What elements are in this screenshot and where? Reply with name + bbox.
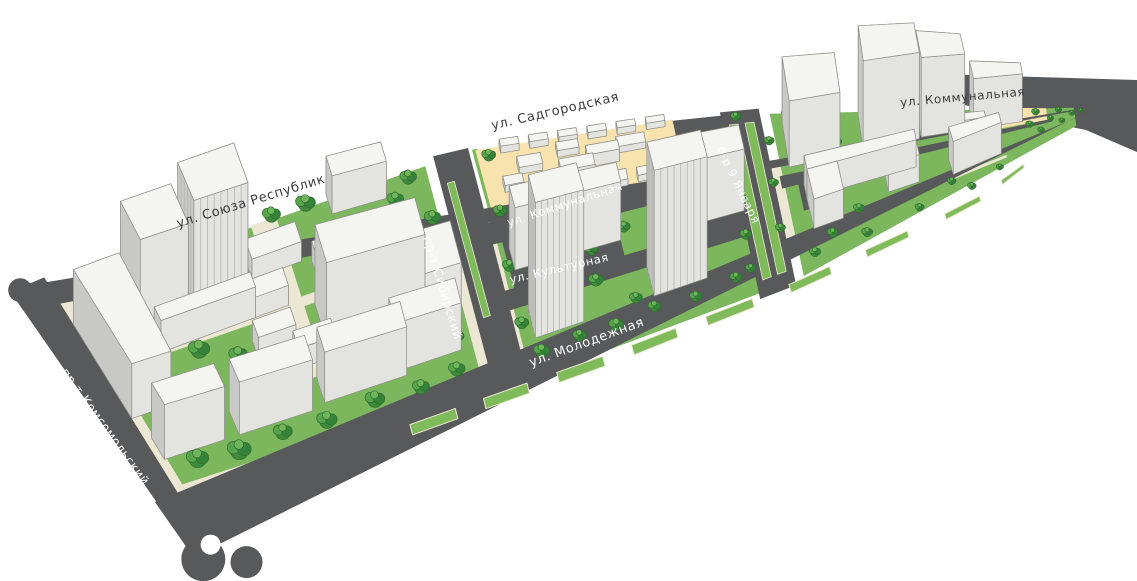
masterplan-svg: ул. Союза Республикул. Садгородскаяул. К… xyxy=(0,0,1137,581)
building xyxy=(616,119,636,135)
tree-blob xyxy=(1070,110,1072,112)
building-roof xyxy=(782,53,840,101)
tree-blob xyxy=(652,301,657,306)
tree-blob xyxy=(194,340,203,349)
tree-blob xyxy=(279,424,287,432)
building xyxy=(807,161,843,229)
tree-blob xyxy=(404,170,411,177)
tree-blob xyxy=(748,264,752,268)
building xyxy=(587,123,607,139)
tree-blob xyxy=(593,274,599,280)
road-edge-detail-2 xyxy=(8,278,32,302)
tree-blob xyxy=(506,260,512,266)
tree-blob xyxy=(1057,107,1060,110)
tree-blob xyxy=(1079,108,1081,110)
tree-blob xyxy=(998,164,1001,167)
building xyxy=(916,31,965,138)
tree-blob xyxy=(970,182,973,185)
tree-blob xyxy=(1034,109,1037,112)
tree-blob xyxy=(1028,121,1031,124)
tree-blob xyxy=(830,228,834,232)
tree-blob xyxy=(301,195,309,203)
building xyxy=(528,163,583,338)
tree-blob xyxy=(743,229,748,234)
tree-blob xyxy=(497,205,503,211)
tree-blob xyxy=(322,411,330,419)
tree-blob xyxy=(767,137,771,141)
tree-cluster xyxy=(1069,110,1075,115)
tree-blob xyxy=(193,449,202,458)
building xyxy=(645,114,665,129)
building xyxy=(499,136,519,153)
tree-blob xyxy=(429,210,436,217)
tree-blob xyxy=(950,177,954,181)
tree-cluster xyxy=(1078,108,1083,113)
tree-blob xyxy=(857,203,861,207)
tree-blob xyxy=(1061,118,1063,120)
road-edge-detail-6 xyxy=(692,377,714,399)
tree-blob xyxy=(865,228,869,232)
tree-blob xyxy=(486,149,492,155)
tree-blob xyxy=(234,440,244,450)
tree-cluster xyxy=(1055,107,1061,112)
building xyxy=(517,153,543,175)
tree-blob xyxy=(576,330,582,336)
tree-blob xyxy=(693,291,698,296)
tree-blob xyxy=(392,192,399,199)
road-edge-detail-3 xyxy=(201,535,221,555)
tree-blob xyxy=(733,112,737,116)
building-roof xyxy=(916,31,965,58)
building xyxy=(528,132,548,148)
road-edge-detail-7 xyxy=(880,283,898,301)
road-median-7 xyxy=(945,196,981,219)
building xyxy=(647,130,707,296)
tree-blob xyxy=(621,221,626,226)
tree-blob xyxy=(453,362,460,369)
building xyxy=(556,139,579,158)
road-edge-detail-1 xyxy=(231,546,263,578)
tree-blob xyxy=(267,207,274,214)
tree-blob xyxy=(771,178,775,182)
road-median-8 xyxy=(1001,164,1024,184)
tree-blob xyxy=(417,380,424,387)
tree-blob xyxy=(519,317,525,323)
tree-blob xyxy=(234,347,242,355)
tree-blob xyxy=(733,272,738,277)
masterplan-figure: ул. Союза Республикул. Садгородскаяул. К… xyxy=(0,0,1137,581)
road-edge-detail-5 xyxy=(492,457,518,483)
tree-blob xyxy=(371,391,379,399)
tree-blob xyxy=(1049,115,1052,118)
tree-blob xyxy=(778,224,782,228)
road-edge-detail-4 xyxy=(312,516,340,544)
tree-cluster xyxy=(968,182,977,189)
tree-blob xyxy=(812,247,817,252)
tree-blob xyxy=(633,292,638,297)
tree-blob xyxy=(918,203,922,207)
tree-blob xyxy=(1040,127,1043,130)
